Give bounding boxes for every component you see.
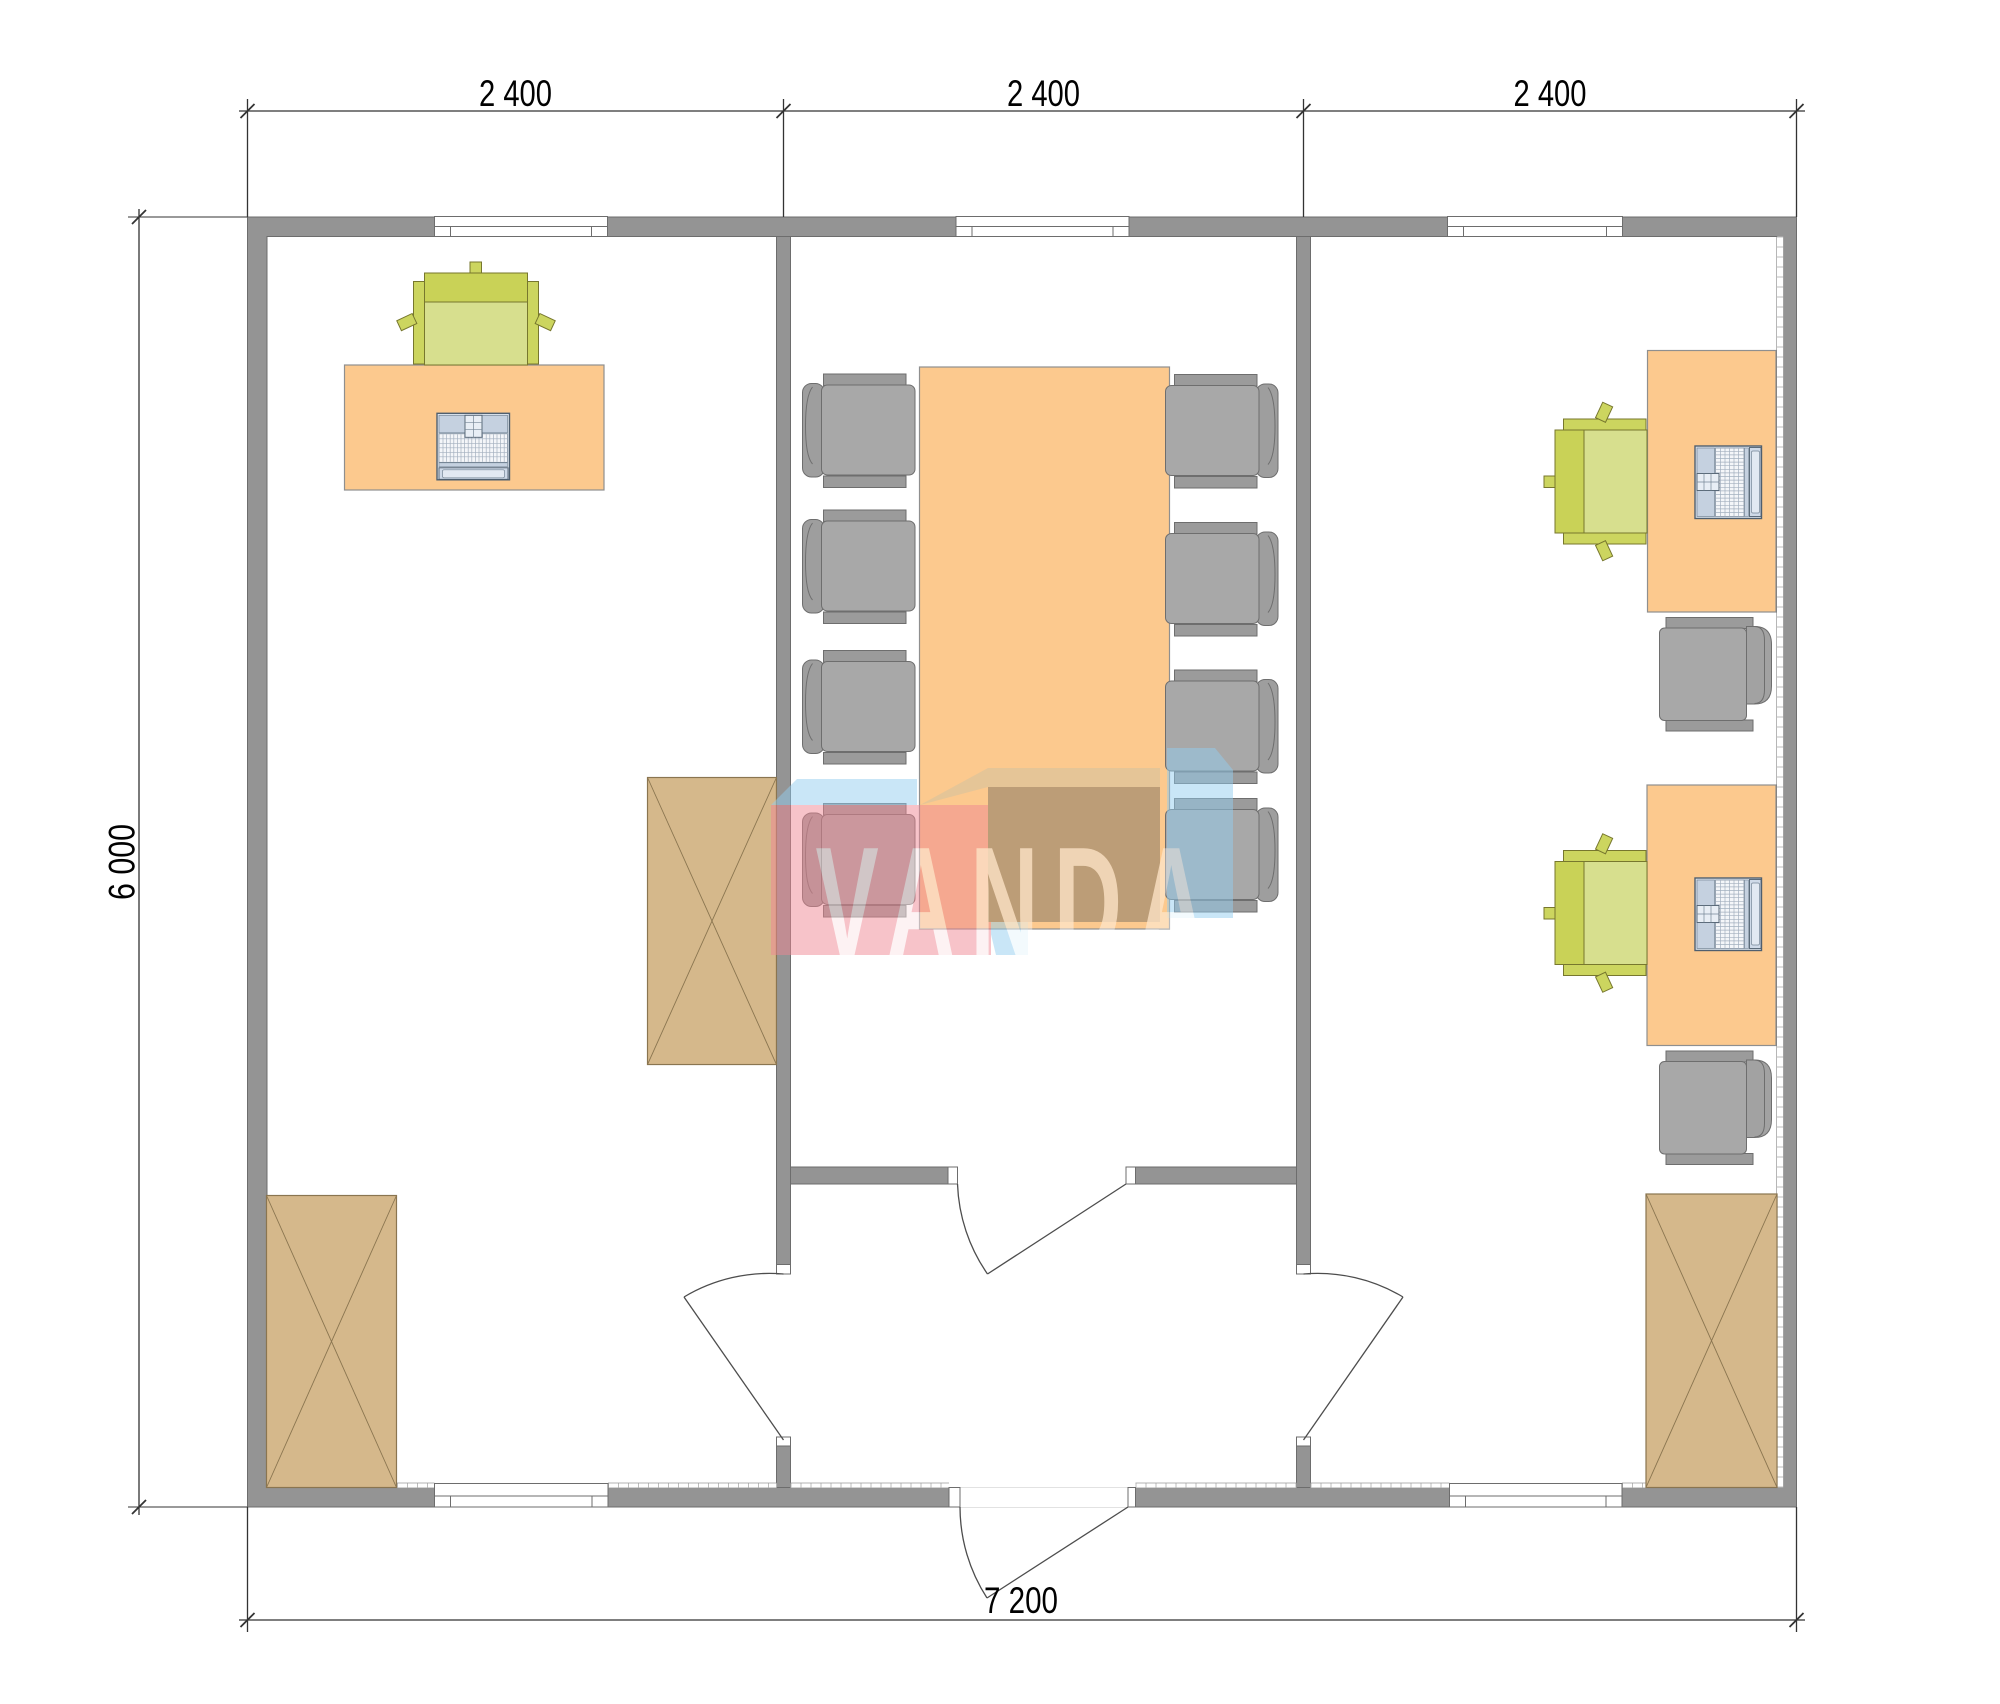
svg-text:6 000: 6 000 — [102, 824, 143, 900]
svg-text:VANDA: VANDA — [815, 814, 1220, 991]
svg-text:2 400: 2 400 — [1007, 73, 1080, 114]
svg-text:2 400: 2 400 — [479, 73, 552, 114]
svg-text:2 400: 2 400 — [1514, 73, 1587, 114]
svg-text:7 200: 7 200 — [984, 1580, 1058, 1621]
